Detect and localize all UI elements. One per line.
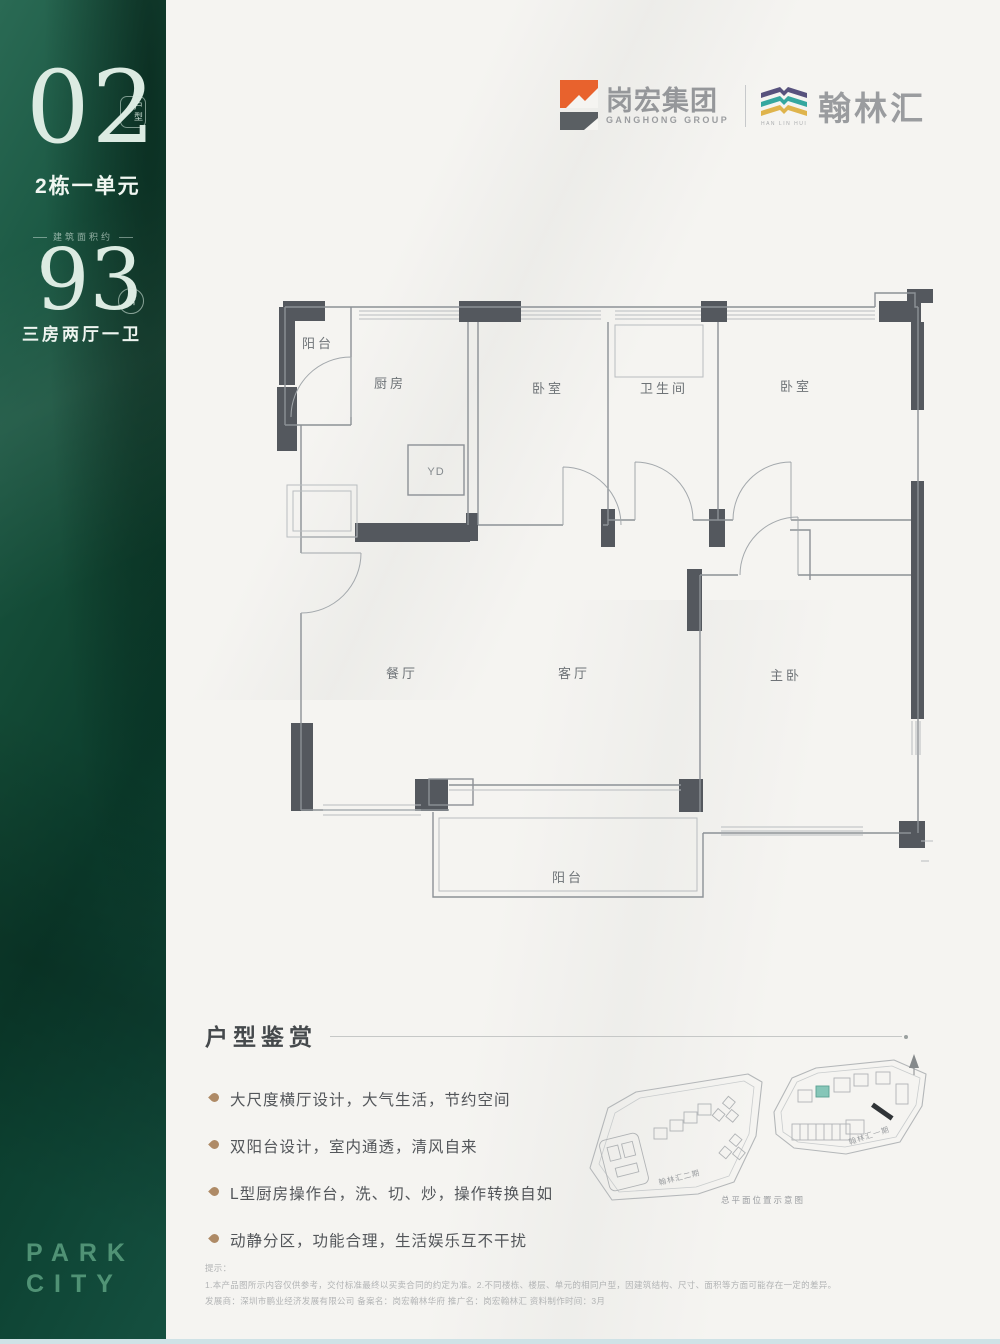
bottom-accent-line bbox=[0, 1339, 1000, 1344]
label-duct: YD bbox=[427, 466, 444, 478]
hanlinhui-icon-wrap: HAN LIN HUI bbox=[760, 85, 808, 127]
unit-type-badge: 户型 bbox=[120, 96, 146, 128]
area-unit: ㎡ bbox=[126, 295, 135, 308]
section-divider bbox=[330, 1036, 902, 1037]
siteplan-dark-bar bbox=[871, 1103, 894, 1121]
disclaimer-heading: 提示： bbox=[205, 1260, 865, 1277]
ganghong-subtitle: GANGHONG GROUP bbox=[606, 115, 729, 125]
disclaimer-line-2: 发展商：深圳市鹏业经济发展有限公司 备案名：岗宏翰林华府 推广名：岗宏翰林汇 资… bbox=[205, 1293, 865, 1310]
area-unit-circle: ㎡ bbox=[118, 288, 144, 314]
siteplan-parcel-left: 翰林汇二期 bbox=[590, 1074, 762, 1200]
label-balcony-bottom: 阳台 bbox=[552, 870, 584, 885]
feature-list: 大尺度横厅设计，大气生活，节约空间 双阳台设计，室内通透，清风自来 L型厨房操作… bbox=[210, 1088, 630, 1276]
siteplan-caption: 总平面位置示意图 bbox=[721, 1195, 805, 1205]
feature-text: 大尺度横厅设计，大气生活，节约空间 bbox=[230, 1088, 511, 1110]
floorplan-drawing: 阳台 厨房 YD 卧室 卫生间 卧室 餐厅 客厅 主卧 阳台 bbox=[263, 285, 935, 905]
siteplan-parcel-right: 翰林汇一期 bbox=[774, 1060, 926, 1154]
siteplan-right-buildings bbox=[792, 1072, 908, 1140]
siteplan-highlighted-building bbox=[816, 1086, 829, 1097]
header-logos: 岗宏集团 GANGHONG GROUP HAN LIN HUI 翰林汇 bbox=[560, 76, 940, 136]
siteplan-label-phase1: 翰林汇一期 bbox=[847, 1124, 891, 1147]
ganghong-name: 岗宏集团 bbox=[606, 87, 729, 115]
hanlinhui-name: 翰林汇 bbox=[818, 82, 926, 130]
logo-divider bbox=[745, 85, 746, 127]
disclaimer-line-1: 1.本产品图所示内容仅供参考，交付标准最终以买卖合同的约定为准。2.不同楼栋、楼… bbox=[205, 1277, 865, 1294]
feature-item: L型厨房操作台，洗、切、炒，操作转换自如 bbox=[210, 1182, 630, 1204]
brand-line-1: PARK bbox=[26, 1238, 135, 1269]
disclaimer-block: 提示： 1.本产品图所示内容仅供参考，交付标准最终以买卖合同的约定为准。2.不同… bbox=[205, 1260, 865, 1310]
siteplan-label-phase2: 翰林汇二期 bbox=[657, 1167, 701, 1187]
label-balcony-top: 阳台 bbox=[302, 336, 334, 351]
hanlinhui-subtitle: HAN LIN HUI bbox=[761, 121, 807, 127]
building-unit-label: 2栋一单元 bbox=[35, 170, 141, 200]
feature-item: 双阳台设计，室内通透，清风自来 bbox=[210, 1135, 630, 1157]
feature-item: 大尺度横厅设计，大气生活，节约空间 bbox=[210, 1088, 630, 1110]
brand-line-2: CITY bbox=[26, 1269, 135, 1300]
sidebar-panel: 02 户型 2栋一单元 建筑面积约 93 ㎡ 三房两厅一卫 PARK CITY bbox=[0, 0, 166, 1344]
floorplan-room-labels: 阳台 厨房 YD 卧室 卫生间 卧室 餐厅 客厅 主卧 阳台 bbox=[302, 336, 812, 885]
label-dining: 餐厅 bbox=[386, 666, 418, 681]
park-city-logo: PARK CITY bbox=[26, 1238, 135, 1301]
north-arrow-icon bbox=[909, 1054, 919, 1075]
floorplan-thick-walls bbox=[277, 289, 933, 848]
label-bedroom-b: 卧室 bbox=[780, 379, 812, 394]
label-bedroom-a: 卧室 bbox=[532, 381, 564, 396]
section-title: 户型鉴赏 bbox=[205, 1018, 317, 1052]
feature-item: 动静分区，功能合理，生活娱乐互不干扰 bbox=[210, 1229, 630, 1251]
hanlinhui-book-icon bbox=[760, 85, 808, 119]
ganghong-logo-text: 岗宏集团 GANGHONG GROUP bbox=[606, 87, 729, 125]
poster-canvas: 02 户型 2栋一单元 建筑面积约 93 ㎡ 三房两厅一卫 PARK CITY … bbox=[0, 0, 1000, 1344]
leaf-bullet-icon bbox=[208, 1232, 221, 1245]
room-layout-label: 三房两厅一卫 bbox=[22, 320, 142, 345]
label-living: 客厅 bbox=[558, 666, 590, 681]
leaf-bullet-icon bbox=[208, 1138, 221, 1151]
siteplan-map: 翰林汇二期 翰林汇一期 总平面位置示意图 bbox=[578, 1048, 938, 1213]
label-bathroom: 卫生间 bbox=[640, 381, 688, 396]
floorplan-windows bbox=[287, 311, 933, 891]
label-master: 主卧 bbox=[770, 668, 802, 683]
feature-text: 动静分区，功能合理，生活娱乐互不干扰 bbox=[230, 1229, 527, 1251]
label-kitchen: 厨房 bbox=[374, 376, 406, 391]
feature-text: L型厨房操作台，洗、切、炒，操作转换自如 bbox=[230, 1182, 553, 1204]
hanlinhui-logo: HAN LIN HUI 翰林汇 bbox=[760, 82, 926, 130]
feature-text: 双阳台设计，室内通透，清风自来 bbox=[230, 1135, 478, 1157]
ganghong-logo-icon bbox=[560, 80, 598, 132]
siteplan-left-buildings bbox=[654, 1096, 750, 1166]
leaf-bullet-icon bbox=[208, 1185, 221, 1198]
leaf-bullet-icon bbox=[208, 1091, 221, 1104]
